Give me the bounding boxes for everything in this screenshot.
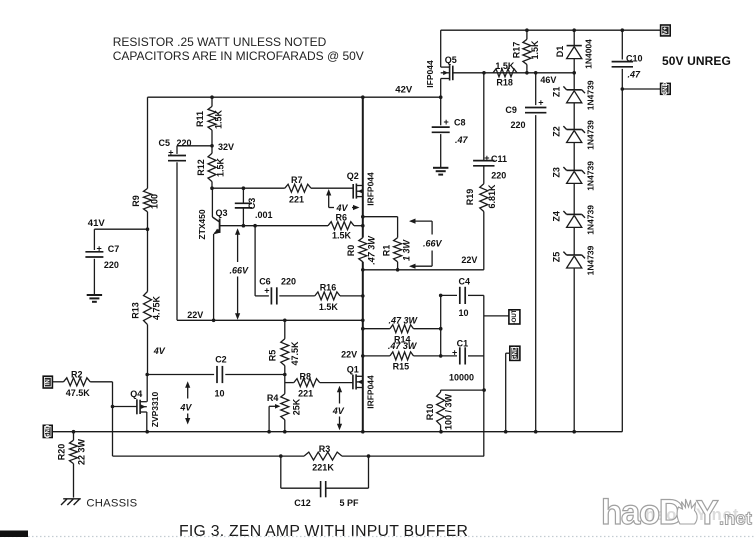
svg-text:R0: R0 — [346, 245, 356, 257]
svg-text:Z3: Z3 — [552, 167, 562, 178]
svg-text:C4: C4 — [459, 277, 471, 287]
svg-text:Z4: Z4 — [552, 211, 562, 222]
svg-text:Z1: Z1 — [552, 87, 562, 98]
svg-text:V+: V+ — [663, 26, 669, 34]
svg-text:R10: R10 — [425, 404, 435, 421]
svg-text:1.5K: 1.5K — [216, 157, 226, 177]
svg-text:+: + — [452, 348, 457, 358]
svg-text:R2: R2 — [71, 370, 83, 380]
svg-text:+: + — [168, 148, 173, 158]
svg-text:220: 220 — [104, 260, 119, 270]
svg-text:4.75K: 4.75K — [152, 295, 162, 320]
svg-text:221: 221 — [298, 389, 313, 399]
svg-text:.66V: .66V — [423, 239, 443, 249]
svg-text:42V: 42V — [395, 85, 413, 96]
svg-text:22V: 22V — [187, 310, 203, 320]
svg-text:5 PF: 5 PF — [340, 498, 360, 508]
svg-text:1.5K: 1.5K — [319, 302, 339, 312]
svg-text:220: 220 — [491, 171, 506, 181]
svg-text:100 / 3W: 100 / 3W — [444, 393, 454, 430]
svg-text:1N4739: 1N4739 — [586, 120, 596, 150]
svg-text:IN: IN — [46, 379, 52, 385]
svg-text:Q1: Q1 — [347, 365, 359, 375]
svg-text:1.5K: 1.5K — [495, 61, 515, 71]
svg-text:10: 10 — [459, 308, 469, 318]
svg-text:+: + — [538, 98, 543, 108]
svg-text:C8: C8 — [454, 118, 466, 128]
svg-text:4V: 4V — [336, 203, 349, 213]
svg-text:R1: R1 — [382, 245, 392, 257]
svg-text:C12: C12 — [294, 498, 311, 508]
svg-text:Q3: Q3 — [216, 208, 228, 218]
svg-text:Q5: Q5 — [445, 55, 457, 65]
svg-text:220: 220 — [511, 120, 526, 130]
svg-text:.47 3W: .47 3W — [388, 341, 418, 351]
svg-text:6.81K: 6.81K — [487, 184, 497, 209]
svg-text:22V: 22V — [461, 255, 477, 265]
svg-text:220: 220 — [281, 277, 296, 287]
svg-text:Q2: Q2 — [347, 171, 359, 181]
svg-text:Q4: Q4 — [130, 389, 142, 399]
svg-text:GND: GND — [46, 424, 52, 438]
svg-text:C11: C11 — [491, 154, 507, 164]
svg-text:1N4739: 1N4739 — [586, 245, 596, 275]
svg-text:R12: R12 — [196, 159, 206, 176]
svg-text:Y: Y — [696, 494, 719, 532]
svg-text:4V: 4V — [332, 406, 345, 416]
svg-text:R3: R3 — [319, 444, 331, 454]
svg-text:22 3W: 22 3W — [77, 438, 87, 465]
svg-text:CHASSIS: CHASSIS — [86, 498, 137, 510]
svg-text:10: 10 — [215, 389, 225, 399]
svg-text:100: 100 — [150, 194, 160, 209]
svg-text:.47: .47 — [628, 70, 642, 80]
svg-text:R13: R13 — [131, 302, 141, 319]
svg-text:R17: R17 — [511, 42, 521, 59]
svg-text:ZTX450: ZTX450 — [197, 209, 207, 240]
svg-text:47.5K: 47.5K — [66, 388, 91, 398]
svg-text:IRFP044: IRFP044 — [365, 172, 375, 206]
svg-text:GND: GND — [663, 82, 669, 96]
svg-text:C10: C10 — [626, 54, 643, 64]
svg-text:R8: R8 — [300, 372, 312, 382]
svg-text:.47 3W: .47 3W — [367, 235, 377, 265]
svg-text:1N4739: 1N4739 — [586, 161, 596, 191]
svg-text:IRFP044: IRFP044 — [365, 375, 375, 409]
svg-text:47.5K: 47.5K — [290, 341, 300, 366]
svg-text:46V: 46V — [540, 75, 556, 85]
svg-text:GND: GND — [513, 346, 519, 360]
svg-text:R20: R20 — [57, 444, 67, 461]
svg-text:R7: R7 — [291, 175, 303, 185]
svg-text:R4: R4 — [267, 393, 279, 403]
svg-text:-OUT: -OUT — [512, 309, 518, 324]
svg-text:R9: R9 — [131, 195, 141, 207]
svg-text:R15: R15 — [393, 362, 410, 372]
svg-text:10000: 10000 — [449, 373, 474, 383]
svg-text:haoD: haoD — [601, 493, 683, 532]
svg-text:ZVP3310: ZVP3310 — [150, 392, 160, 428]
svg-text:C3: C3 — [247, 198, 257, 210]
svg-text:220: 220 — [177, 138, 192, 148]
svg-text:C1: C1 — [457, 339, 469, 349]
svg-text:RESISTOR .25 WATT UNLESS NOTE: RESISTOR .25 WATT UNLESS NOTED — [113, 35, 327, 49]
svg-text:32V: 32V — [218, 142, 234, 152]
svg-text:R18: R18 — [496, 78, 513, 88]
svg-text:C9: C9 — [505, 105, 517, 115]
svg-text:C7: C7 — [108, 244, 120, 254]
svg-text:+: + — [444, 117, 449, 127]
svg-text:.66V: .66V — [230, 266, 250, 276]
svg-text:+: + — [264, 286, 269, 296]
svg-text:CAPACITORS ARE IN MICROFARADS: CAPACITORS ARE IN MICROFARADS @ 50V — [113, 49, 364, 63]
svg-text:221: 221 — [289, 195, 304, 205]
svg-text:221K: 221K — [312, 463, 334, 473]
svg-text:50V UNREG: 50V UNREG — [662, 54, 731, 68]
svg-text:C2: C2 — [215, 355, 227, 365]
svg-text:R11: R11 — [195, 111, 205, 127]
svg-text:1N4004: 1N4004 — [584, 39, 594, 69]
svg-text:1.5K: 1.5K — [332, 231, 352, 241]
svg-text:1.5K: 1.5K — [530, 40, 540, 60]
svg-text:41V: 41V — [88, 218, 106, 229]
svg-text:1.5K: 1.5K — [214, 109, 224, 129]
svg-text:22V: 22V — [341, 350, 357, 360]
svg-text:D1: D1 — [555, 46, 565, 58]
svg-text:.net: .net — [719, 508, 752, 529]
svg-text:1N4739: 1N4739 — [586, 80, 596, 110]
svg-text:1N4739: 1N4739 — [586, 205, 596, 235]
svg-text:Z2: Z2 — [552, 126, 562, 137]
svg-text:.001: .001 — [255, 210, 273, 220]
svg-text:Z5: Z5 — [552, 252, 562, 263]
svg-text:C5: C5 — [159, 138, 171, 148]
svg-text:IFP044: IFP044 — [425, 60, 435, 88]
svg-text:.47 3W: .47 3W — [389, 316, 419, 326]
svg-text:4V: 4V — [179, 403, 192, 413]
svg-text:4V: 4V — [153, 346, 166, 356]
svg-text:R19: R19 — [465, 189, 475, 206]
svg-text:R5: R5 — [268, 350, 278, 362]
svg-text:1 3W: 1 3W — [402, 238, 412, 261]
svg-text:+: + — [484, 153, 489, 163]
svg-text:R16: R16 — [320, 283, 337, 293]
svg-text:+: + — [97, 244, 102, 254]
svg-text:.47: .47 — [455, 135, 469, 145]
svg-text:R6: R6 — [336, 213, 348, 223]
svg-text:25K: 25K — [292, 398, 302, 415]
